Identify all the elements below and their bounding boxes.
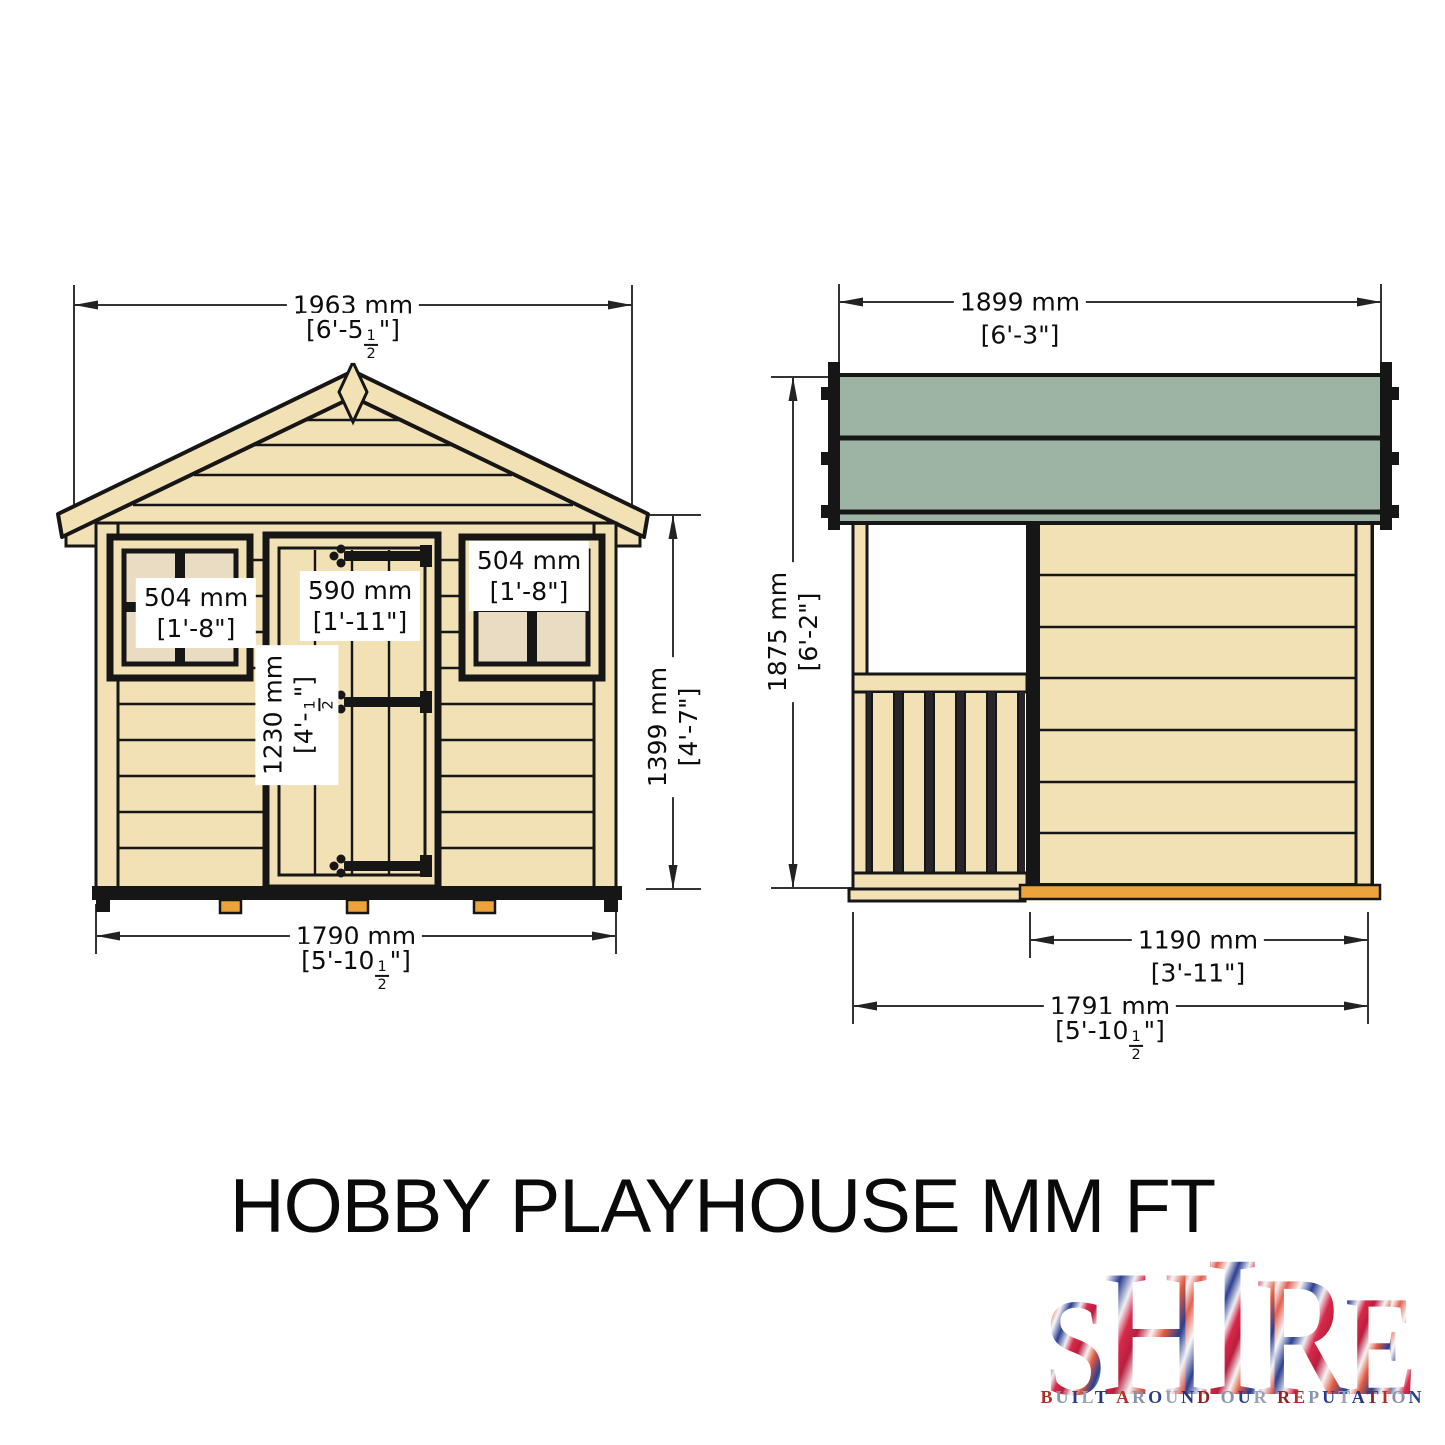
front-base (92, 886, 622, 913)
front-window-left-label: 504 mm [1'-8"] (136, 578, 256, 648)
porch-floor (849, 889, 1025, 901)
side-porch (849, 523, 1027, 901)
porch-rail-top (853, 674, 1027, 692)
front-roof-width-ft: [6'-512"] (300, 313, 406, 363)
shire-logo-tagline: BUILT AROUND OUR REPUTATION (1040, 1388, 1425, 1408)
side-roof-length-mm: 1899 mm (954, 286, 1086, 319)
front-skid (474, 900, 495, 913)
cabin-door-jamb (1028, 523, 1040, 885)
cabin-floor-bearer (1020, 885, 1380, 899)
front-door-height-label: 1230 mm [4'-12"] (255, 645, 338, 785)
side-cabin-length-mm: 1190 mm (1132, 924, 1264, 957)
side-cabin (1020, 523, 1380, 899)
roof-end-cap-left (821, 362, 840, 530)
porch-corner-post (853, 523, 867, 891)
porch-rail-bottom (853, 873, 1027, 889)
side-elevation (771, 284, 1399, 1024)
roof-end-cap-right (1380, 362, 1399, 530)
front-skid (347, 900, 368, 913)
side-height-label: 1875 mm [6'-2"] (760, 562, 826, 702)
front-base-width-ft: [5'-1012"] (295, 944, 417, 994)
front-door-width-label: 590 mm [1'-11"] (300, 571, 420, 641)
side-roof-length-ft: [6'-3"] (975, 319, 1066, 352)
side-cabin-length-ft: [3'-11"] (1145, 957, 1252, 990)
cabin-corner-trim (1356, 523, 1372, 885)
side-roof (821, 362, 1399, 530)
playhouse-dimension-diagram: 1963 mm [6'-512"] 504 mm [1'-8"] 590 mm … (0, 0, 1445, 1445)
front-wall-height-label: 1399 mm [4'-7"] (640, 657, 706, 797)
front-skid (220, 900, 241, 913)
front-window-right-label: 504 mm [1'-8"] (469, 541, 589, 611)
side-total-length-ft: [5'-1012"] (1049, 1014, 1171, 1064)
